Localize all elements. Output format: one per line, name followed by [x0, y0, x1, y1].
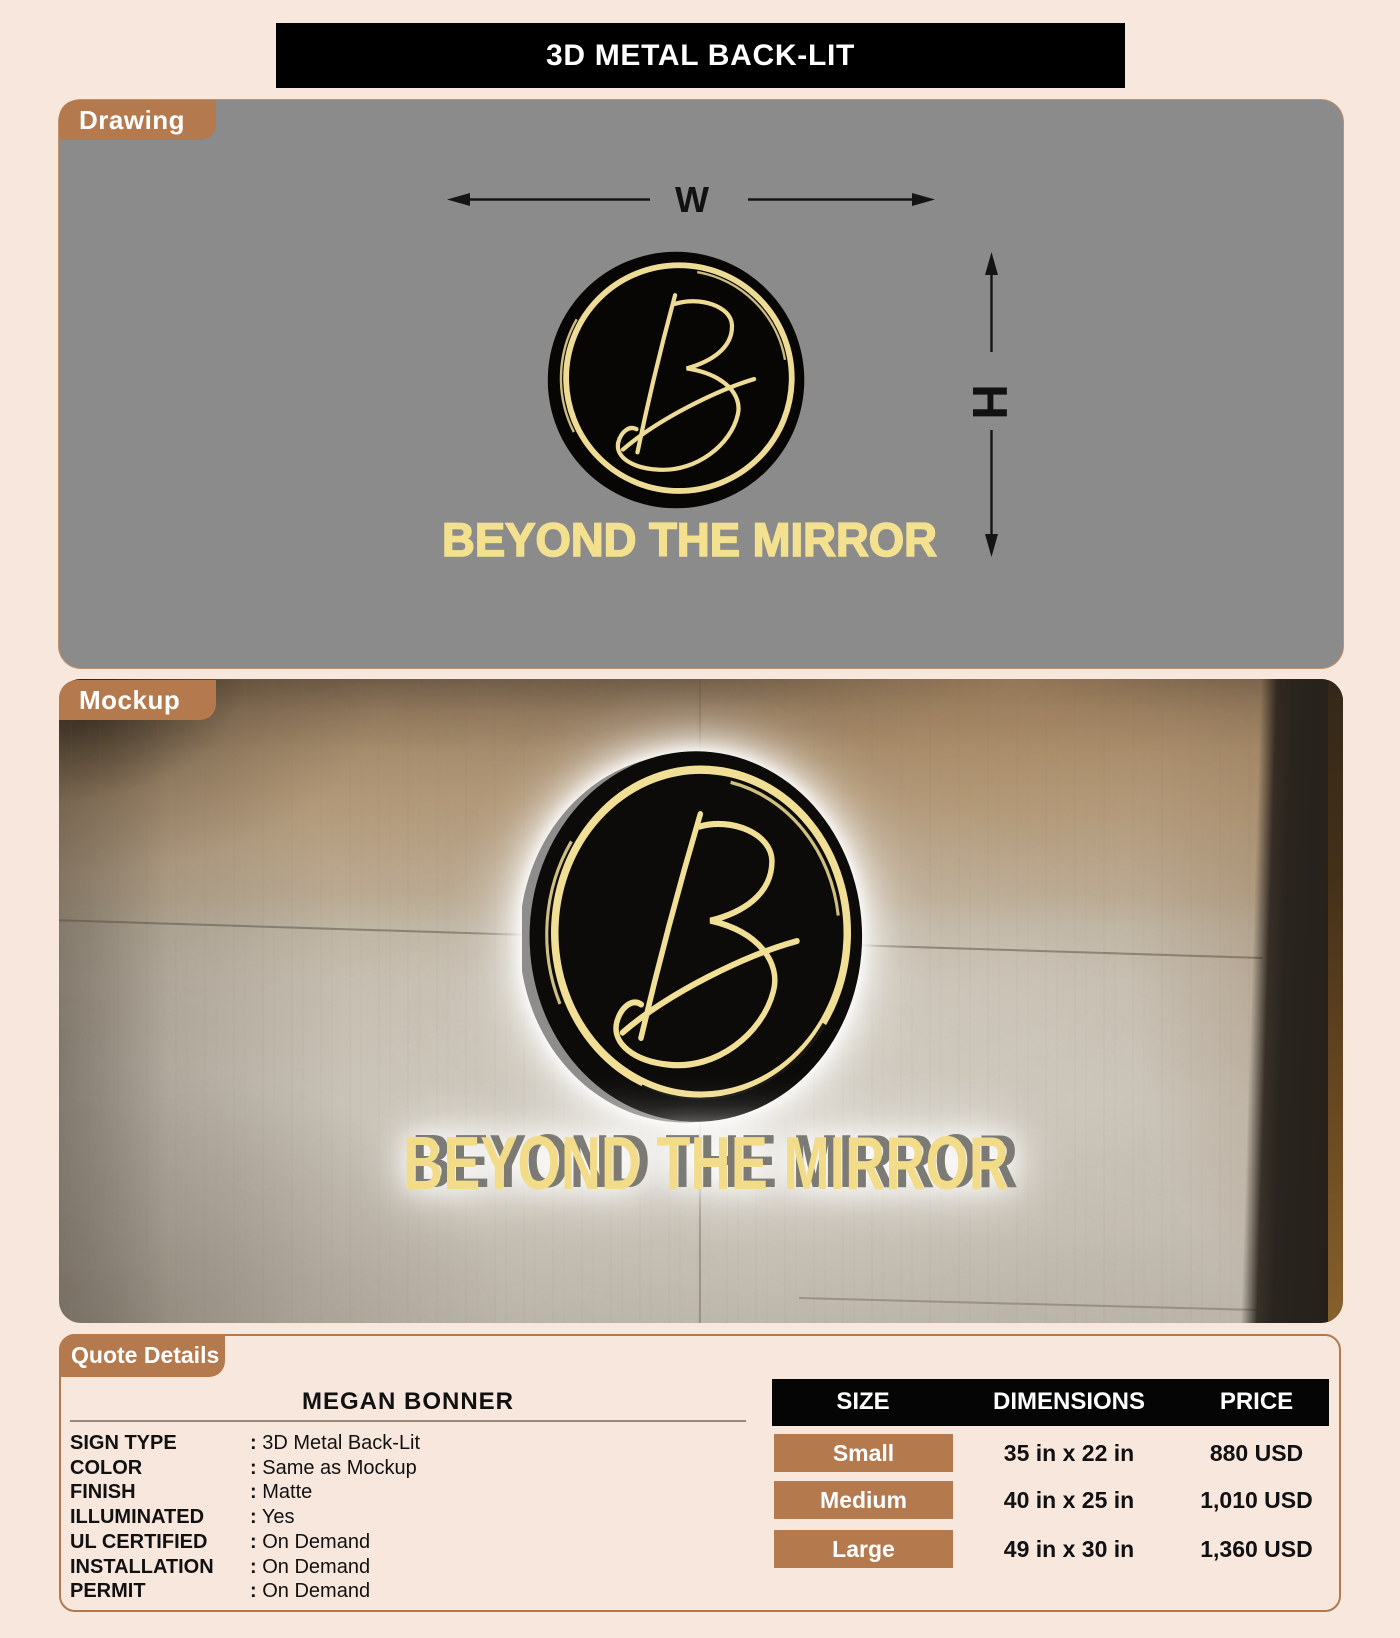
svg-text:BEYOND THE MIRROR: BEYOND THE MIRROR — [403, 1121, 1009, 1205]
svg-text:H: H — [962, 384, 1016, 419]
svg-text:W: W — [675, 179, 709, 220]
svg-text:BEYOND THE MIRROR: BEYOND THE MIRROR — [442, 515, 937, 565]
